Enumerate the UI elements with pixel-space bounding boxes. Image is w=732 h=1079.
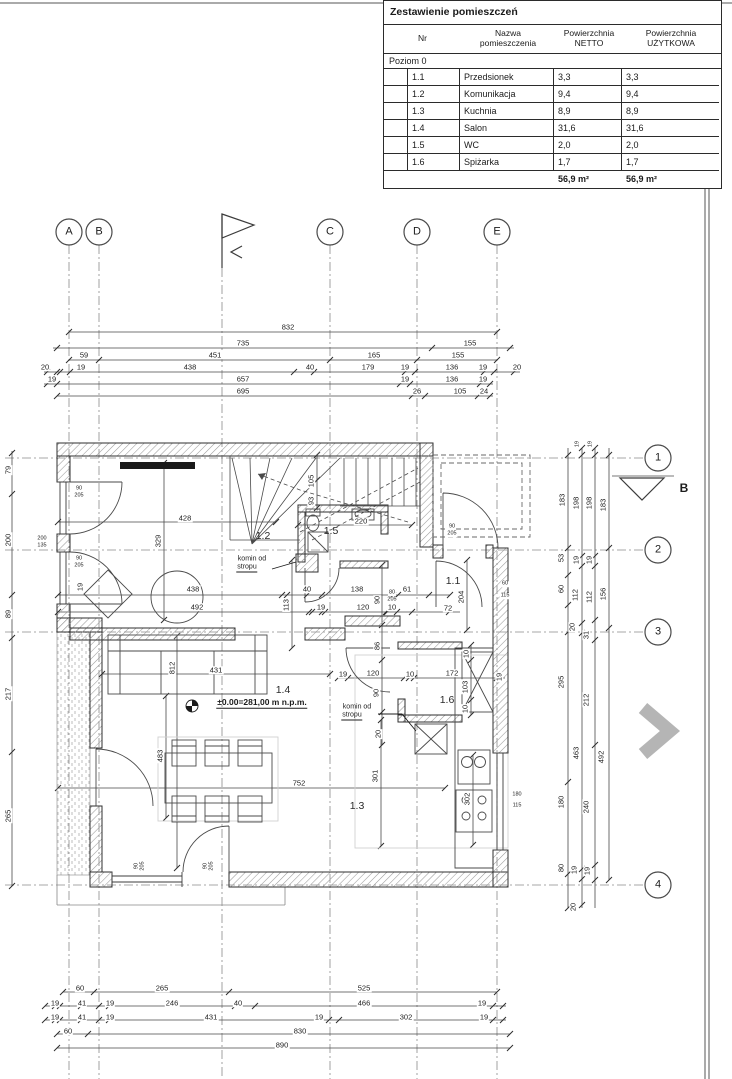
wc-fixtures bbox=[306, 509, 374, 552]
cell-netto: 1,7 bbox=[554, 154, 622, 171]
cell-netto: 8,9 bbox=[554, 103, 622, 120]
round-table bbox=[151, 571, 203, 623]
cell-indent bbox=[384, 154, 408, 171]
table-total-row: 56,9 m² 56,9 m² bbox=[384, 171, 721, 188]
cell-nr: 1.1 bbox=[408, 69, 460, 86]
elevation-marker bbox=[186, 562, 416, 731]
cell-nr: 1.4 bbox=[408, 120, 460, 137]
cell-indent bbox=[384, 120, 408, 137]
cell-netto: 31,6 bbox=[554, 120, 622, 137]
kitchen-sink bbox=[458, 750, 490, 784]
total-uzytkowa: 56,9 m² bbox=[622, 171, 719, 188]
chimney-block bbox=[415, 724, 447, 754]
windows bbox=[57, 482, 508, 887]
cell-indent bbox=[384, 103, 408, 120]
cell-indent bbox=[384, 86, 408, 103]
cell-indent bbox=[384, 137, 408, 154]
cell-indent bbox=[384, 69, 408, 86]
cell-name: Przedsionek bbox=[460, 69, 554, 86]
table-rows: 1.1Przedsionek3,33,31.2Komunikacja9,49,4… bbox=[384, 69, 721, 171]
next-chevron-icon[interactable] bbox=[643, 708, 670, 754]
cell-uzytkowa: 3,3 bbox=[622, 69, 719, 86]
section-flag-a bbox=[222, 214, 254, 268]
col-header-netto: Powierzchnia NETTO bbox=[555, 25, 623, 53]
col-header-nr: Nr bbox=[384, 25, 461, 53]
cell-uzytkowa: 9,4 bbox=[622, 86, 719, 103]
cell-name: WC bbox=[460, 137, 554, 154]
cell-name: Salon bbox=[460, 120, 554, 137]
grid-bubbles bbox=[56, 219, 671, 898]
staircase bbox=[230, 456, 420, 544]
cell-netto: 3,3 bbox=[554, 69, 622, 86]
cell-uzytkowa: 31,6 bbox=[622, 120, 719, 137]
cell-nr: 1.2 bbox=[408, 86, 460, 103]
ceiling-projections bbox=[158, 655, 508, 848]
total-netto: 56,9 m² bbox=[554, 171, 622, 188]
cell-nr: 1.6 bbox=[408, 154, 460, 171]
dimension-lines bbox=[12, 332, 674, 1048]
table-header: Nr Nazwa pomieszczenia Powierzchnia NETT… bbox=[384, 25, 721, 54]
entrance-canopy bbox=[433, 455, 530, 537]
section-flag-b bbox=[620, 478, 664, 500]
tall-cabinet bbox=[462, 652, 493, 712]
dining-table-set bbox=[165, 740, 272, 822]
cell-nr: 1.3 bbox=[408, 103, 460, 120]
room-schedule-table: Zestawienie pomieszczeń Nr Nazwa pomiesz… bbox=[383, 0, 722, 189]
cell-nr: 1.5 bbox=[408, 137, 460, 154]
sofa bbox=[108, 635, 267, 694]
cell-name: Spiżarka bbox=[460, 154, 554, 171]
armchair bbox=[84, 570, 132, 618]
table-title: Zestawienie pomieszczeń bbox=[384, 1, 721, 25]
cell-uzytkowa: 1,7 bbox=[622, 154, 719, 171]
kitchen-counter bbox=[455, 648, 493, 868]
cell-netto: 2,0 bbox=[554, 137, 622, 154]
stove bbox=[456, 790, 492, 832]
cell-name: Kuchnia bbox=[460, 103, 554, 120]
cell-uzytkowa: 8,9 bbox=[622, 103, 719, 120]
level-section-row: Poziom 0 bbox=[384, 54, 721, 69]
doors bbox=[70, 482, 498, 872]
sideboard bbox=[120, 462, 195, 469]
col-header-name: Nazwa pomieszczenia bbox=[461, 25, 555, 53]
cell-uzytkowa: 2,0 bbox=[622, 137, 719, 154]
walls bbox=[57, 443, 508, 887]
floor-plan-page: 8327351555945116515520194384017919136192… bbox=[0, 0, 732, 1079]
cell-netto: 9,4 bbox=[554, 86, 622, 103]
col-header-uzytkowa: Powierzchnia UŻYTKOWA bbox=[623, 25, 719, 53]
cell-name: Komunikacja bbox=[460, 86, 554, 103]
